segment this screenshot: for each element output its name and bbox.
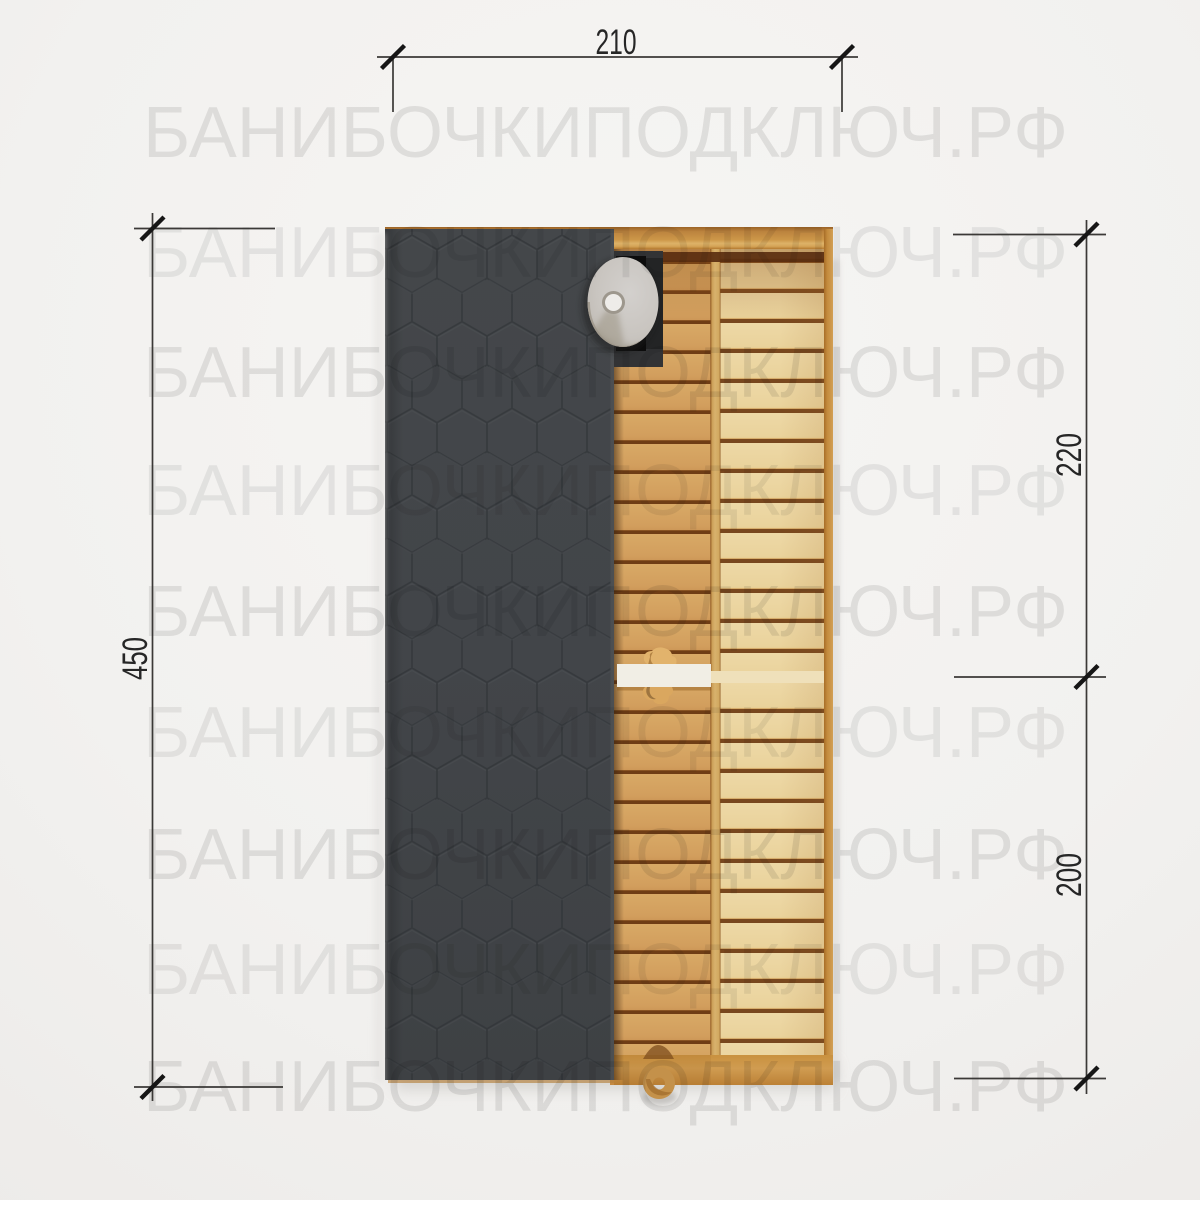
svg-text:БАНИБОЧКИПОДКЛЮЧ.РФ: БАНИБОЧКИПОДКЛЮЧ.РФ xyxy=(143,571,1068,652)
svg-text:220: 220 xyxy=(1050,433,1089,477)
svg-text:БАНИБОЧКИПОДКЛЮЧ.РФ: БАНИБОЧКИПОДКЛЮЧ.РФ xyxy=(143,692,1068,773)
svg-text:210: 210 xyxy=(596,23,637,62)
svg-text:БАНИБОЧКИПОДКЛЮЧ.РФ: БАНИБОЧКИПОДКЛЮЧ.РФ xyxy=(143,929,1068,1010)
svg-text:БАНИБОЧКИПОДКЛЮЧ.РФ: БАНИБОЧКИПОДКЛЮЧ.РФ xyxy=(143,814,1068,895)
svg-text:БАНИБОЧКИПОДКЛЮЧ.РФ: БАНИБОЧКИПОДКЛЮЧ.РФ xyxy=(143,212,1068,293)
svg-text:БАНИБОЧКИПОДКЛЮЧ.РФ: БАНИБОЧКИПОДКЛЮЧ.РФ xyxy=(143,332,1068,413)
svg-text:450: 450 xyxy=(116,637,155,680)
svg-text:БАНИБОЧКИПОДКЛЮЧ.РФ: БАНИБОЧКИПОДКЛЮЧ.РФ xyxy=(143,92,1068,173)
svg-text:200: 200 xyxy=(1050,853,1089,897)
svg-text:БАНИБОЧКИПОДКЛЮЧ.РФ: БАНИБОЧКИПОДКЛЮЧ.РФ xyxy=(143,450,1068,531)
